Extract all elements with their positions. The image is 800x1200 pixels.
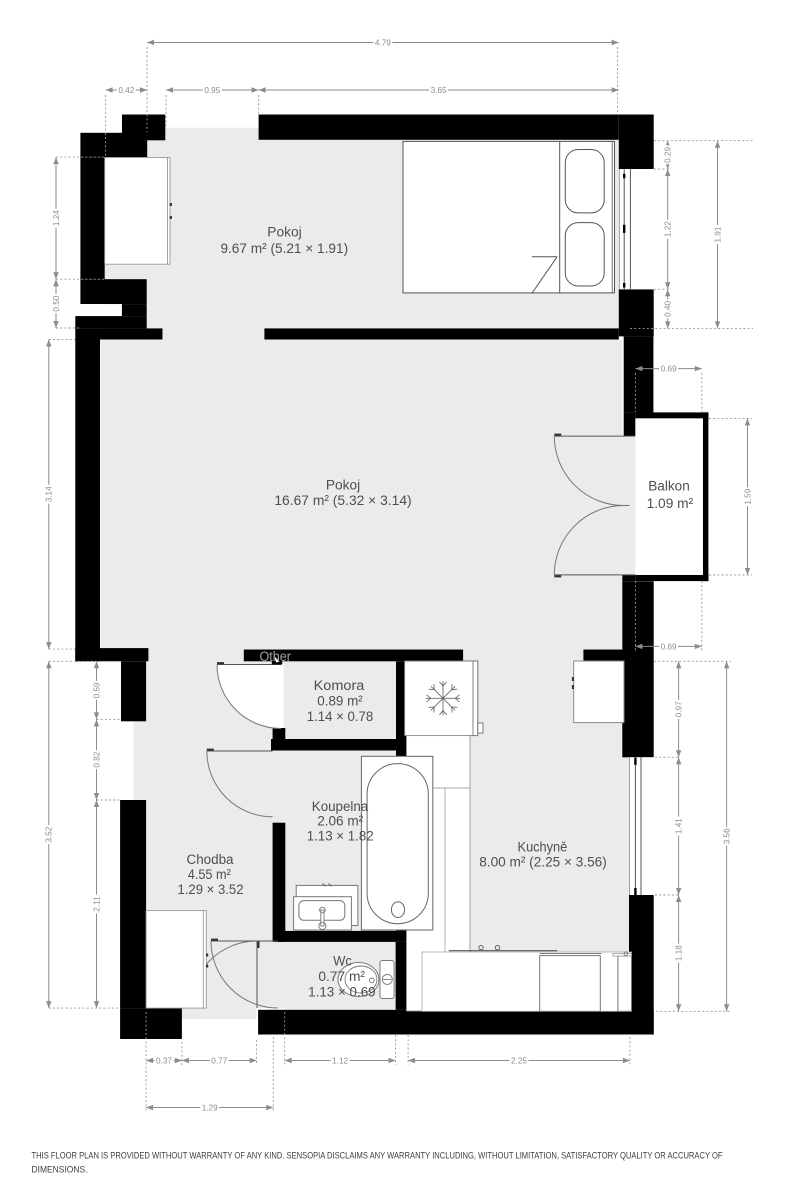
svg-text:3.56: 3.56 [723,828,732,844]
svg-text:1.22: 1.22 [664,221,673,237]
svg-text:Balkon: Balkon [648,479,690,495]
svg-text:Other: Other [259,649,291,665]
svg-text:1.09 m²: 1.09 m² [647,496,694,512]
svg-text:1.91: 1.91 [713,226,722,242]
svg-text:1.41: 1.41 [675,818,684,834]
svg-text:4.79: 4.79 [375,38,391,47]
svg-text:4.55 m²: 4.55 m² [188,867,231,883]
svg-text:THIS FLOOR PLAN IS PROVIDED WI: THIS FLOOR PLAN IS PROVIDED WITHOUT WARR… [32,1151,723,1161]
svg-text:0.40: 0.40 [664,300,673,316]
svg-text:1.24: 1.24 [52,210,61,226]
svg-text:Pokoj: Pokoj [326,478,360,494]
svg-text:3.52: 3.52 [45,826,54,842]
svg-text:0.29: 0.29 [664,146,673,162]
svg-text:Kuchyně: Kuchyně [518,840,568,856]
svg-text:Komora: Komora [314,678,365,694]
svg-text:2.06 m²: 2.06 m² [317,814,363,830]
svg-text:3.65: 3.65 [431,86,447,95]
svg-text:0.42: 0.42 [118,86,134,95]
svg-text:0.69: 0.69 [661,365,677,374]
svg-text:0.77 m²: 0.77 m² [318,969,365,985]
svg-text:16.67 m² (5.32 × 3.14): 16.67 m² (5.32 × 3.14) [274,493,411,509]
svg-text:1.29 × 3.52: 1.29 × 3.52 [178,882,244,898]
svg-text:1.59: 1.59 [743,488,752,504]
svg-text:0.97: 0.97 [675,701,684,717]
svg-text:0.89 m²: 0.89 m² [317,694,363,710]
svg-text:Wc: Wc [333,954,352,970]
svg-text:0.50: 0.50 [52,295,61,311]
svg-text:Chodba: Chodba [187,852,234,868]
svg-text:1.12: 1.12 [332,1056,348,1065]
svg-text:1.13 × 0.69: 1.13 × 0.69 [308,985,376,1001]
svg-text:Pokoj: Pokoj [267,225,301,241]
svg-text:3.14: 3.14 [45,486,54,502]
svg-text:0.69: 0.69 [661,642,677,651]
svg-text:0.95: 0.95 [204,86,220,95]
svg-text:1.29: 1.29 [202,1103,218,1112]
svg-text:1.13 × 1.82: 1.13 × 1.82 [307,829,374,845]
svg-text:1.14 × 0.78: 1.14 × 0.78 [307,709,374,725]
svg-text:2.11: 2.11 [92,896,101,912]
svg-text:0.82: 0.82 [92,751,101,767]
svg-text:DIMENSIONS.: DIMENSIONS. [32,1165,88,1175]
svg-text:1.18: 1.18 [675,945,684,961]
svg-text:0.77: 0.77 [211,1056,227,1065]
svg-text:0.37: 0.37 [156,1056,172,1065]
svg-text:8.00 m² (2.25 × 3.56): 8.00 m² (2.25 × 3.56) [479,855,607,871]
svg-text:9.67 m² (5.21 × 1.91): 9.67 m² (5.21 × 1.91) [220,241,348,257]
svg-text:0.59: 0.59 [92,682,101,698]
svg-text:2.25: 2.25 [511,1056,527,1065]
